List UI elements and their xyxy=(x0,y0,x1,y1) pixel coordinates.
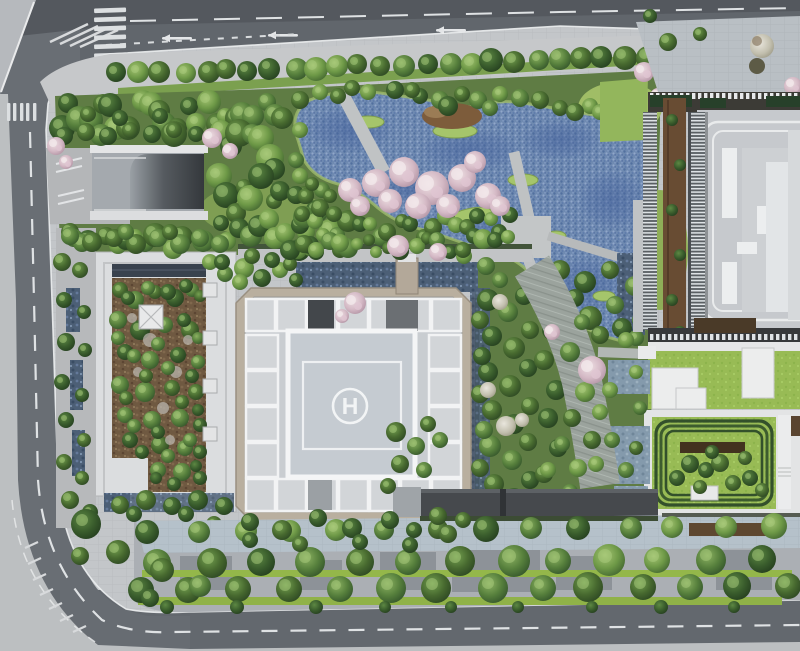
svg-text:H: H xyxy=(342,393,359,419)
